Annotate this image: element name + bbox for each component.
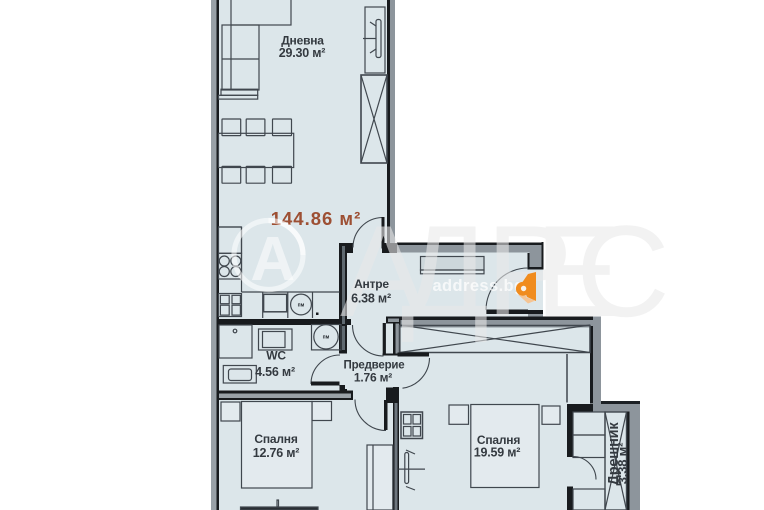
svg-text:пм: пм	[298, 302, 305, 308]
svg-text:12.76 м²: 12.76 м²	[253, 446, 300, 460]
svg-text:19.59 м²: 19.59 м²	[474, 446, 521, 460]
svg-text:address.bg: address.bg	[432, 277, 524, 295]
svg-text:С: С	[576, 198, 670, 344]
svg-text:Д: Д	[401, 198, 489, 344]
svg-text:пм: пм	[323, 335, 330, 341]
svg-text:WC: WC	[266, 349, 286, 363]
svg-text:Спалня: Спалня	[254, 432, 297, 446]
svg-text:А: А	[250, 225, 295, 294]
svg-text:Антре: Антре	[354, 277, 389, 291]
svg-text:6.38 м²: 6.38 м²	[351, 292, 391, 306]
svg-text:29.30 м²: 29.30 м²	[279, 46, 326, 60]
svg-text:1.76 м²: 1.76 м²	[354, 371, 392, 385]
svg-text:4.56 м²: 4.56 м²	[255, 365, 295, 379]
svg-text:3.38 м²: 3.38 м²	[615, 442, 630, 484]
